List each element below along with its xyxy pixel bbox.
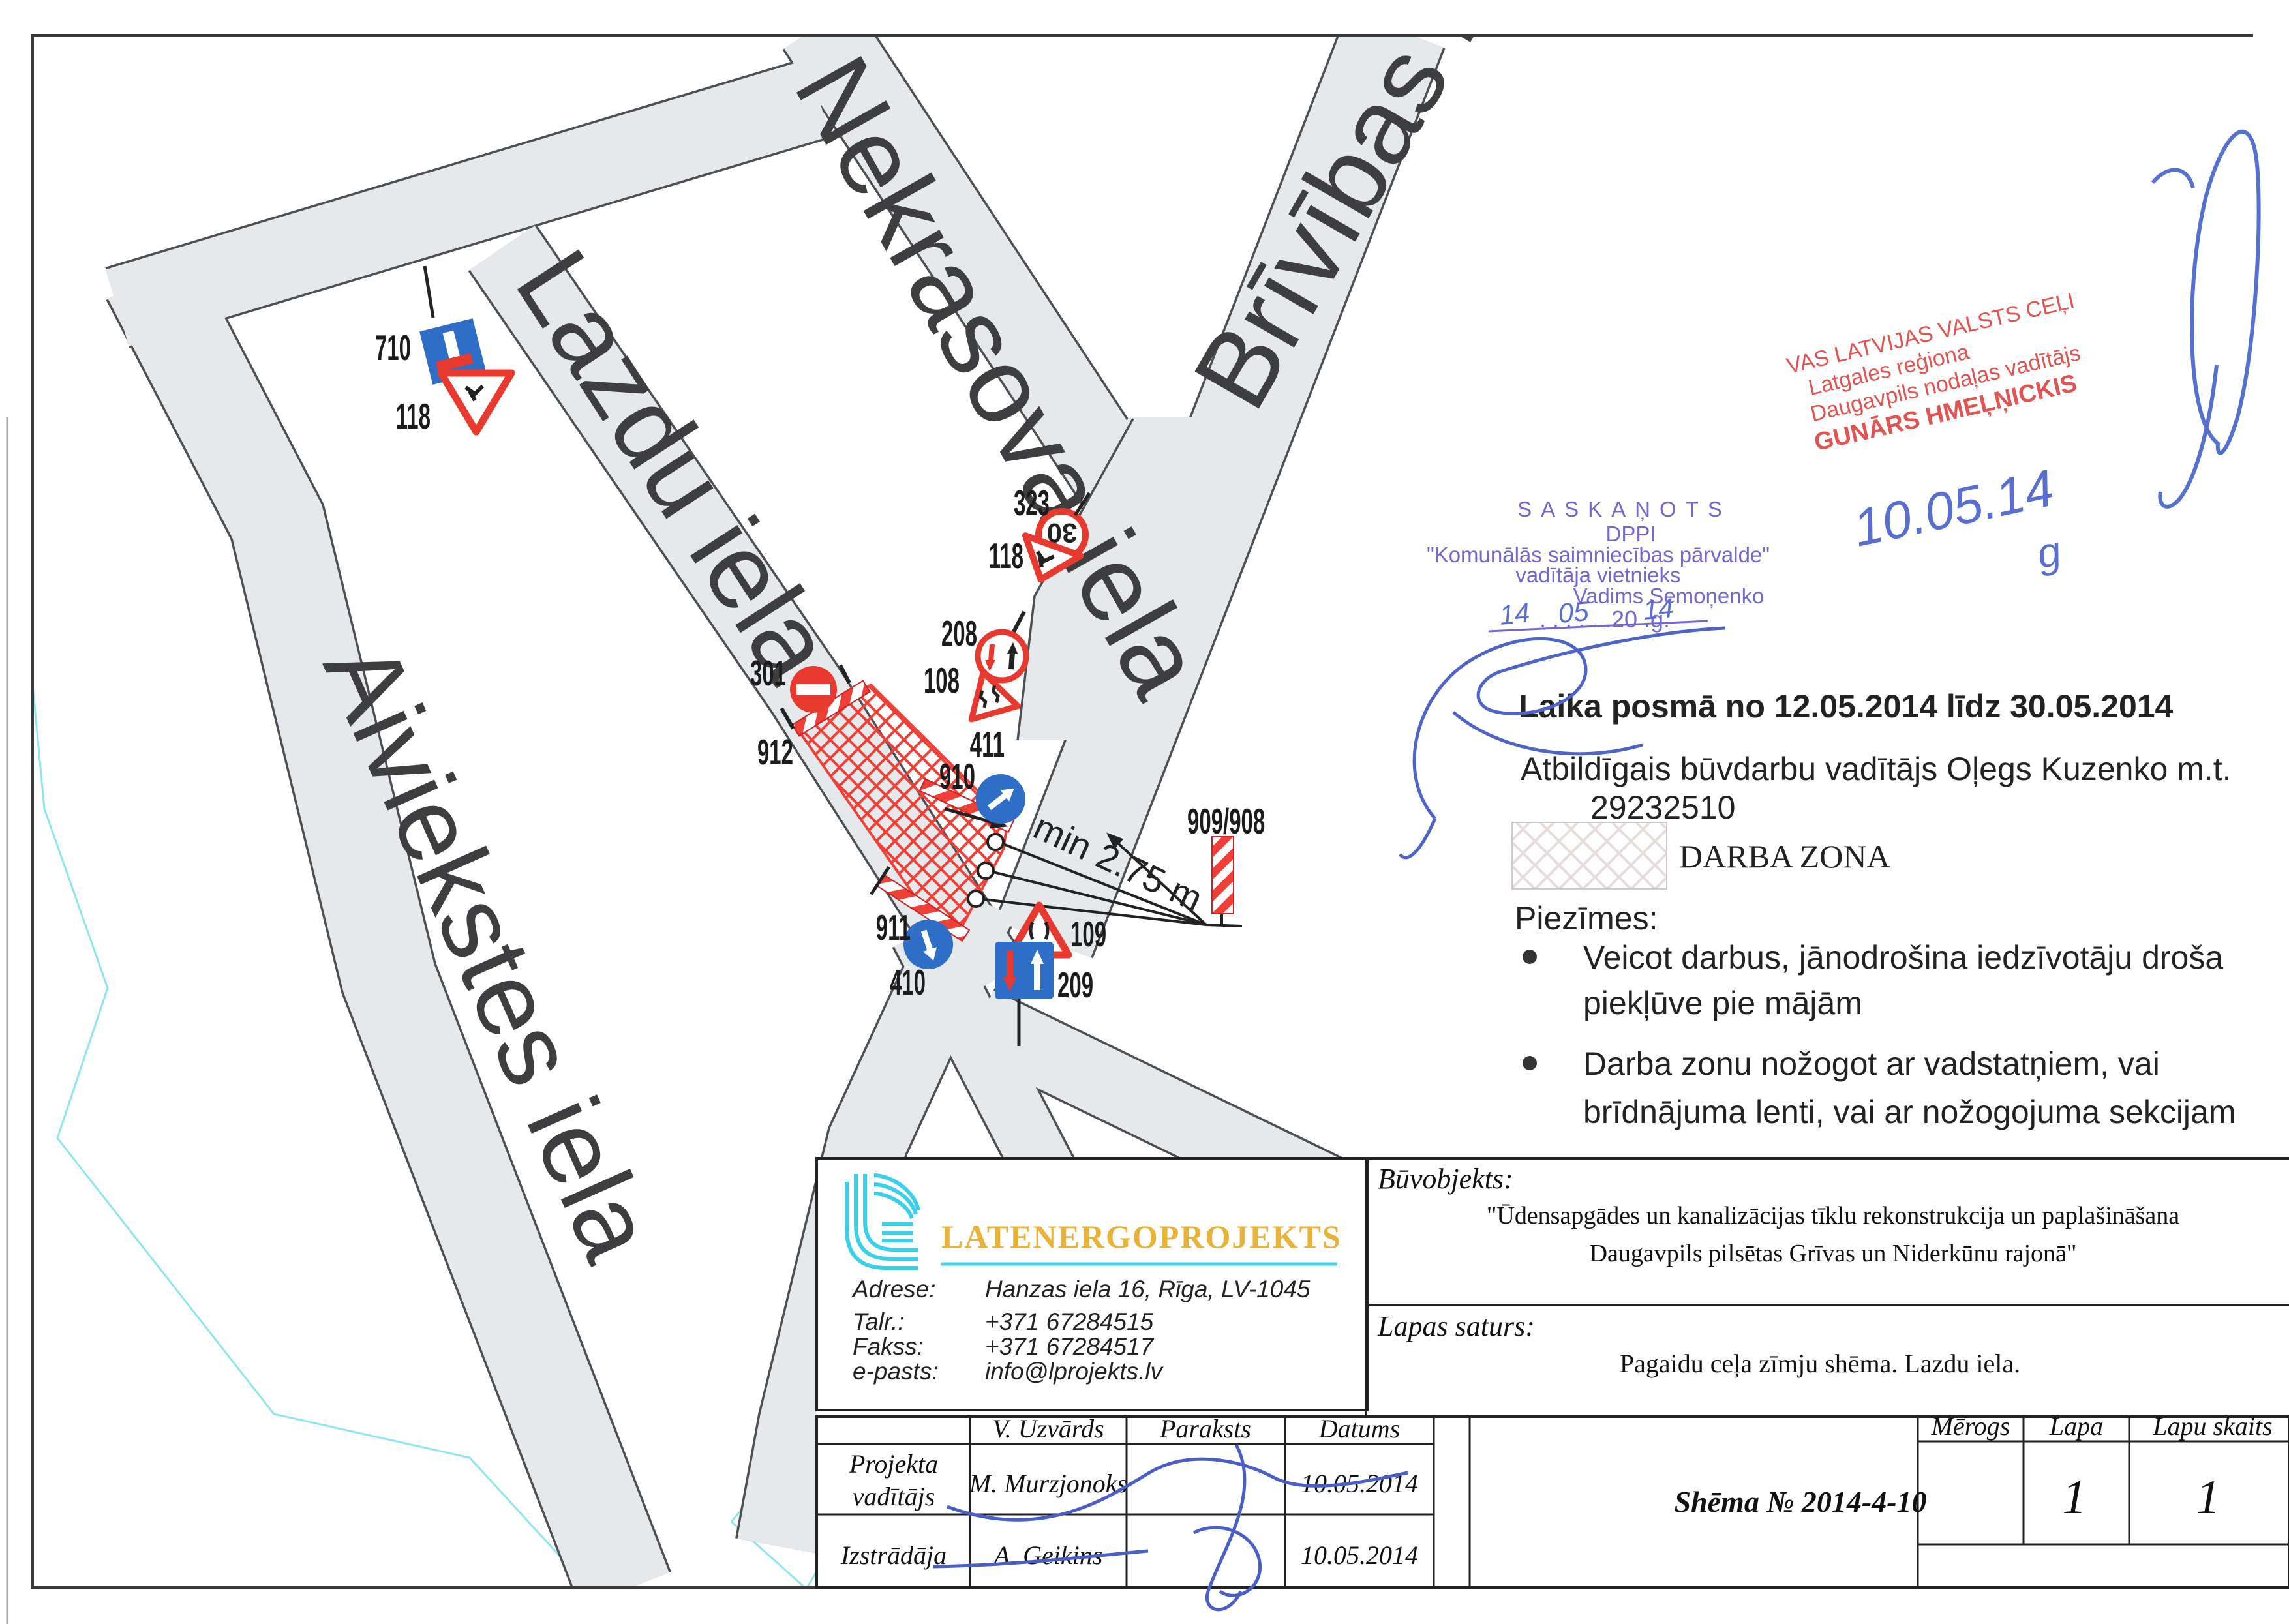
svg-text:Lapas saturs:: Lapas saturs: [1377,1310,1535,1342]
svg-text:108: 108 [924,660,960,700]
svg-text:Lapa: Lapa [2049,1411,2103,1441]
svg-text:05: 05 [1557,595,1590,629]
svg-text:+371 67284517: +371 67284517 [985,1333,1155,1360]
svg-text:109: 109 [1070,914,1106,954]
svg-text:DARBA ZONA: DARBA ZONA [1679,838,1890,875]
svg-text:911: 911 [876,907,911,948]
svg-text:Laika posmā no 12.05.2014 līdz: Laika posmā no 12.05.2014 līdz 30.05.201… [1519,688,2174,725]
svg-text:Paraksts: Paraksts [1159,1414,1251,1443]
svg-text:Piezīmes:: Piezīmes: [1515,900,1658,937]
svg-text:Shēma № 2014-4-10: Shēma № 2014-4-10 [1674,1485,1926,1518]
svg-text:V. Uzvārds: V. Uzvārds [992,1414,1104,1443]
svg-text:Daugavpils pilsētas Grīvas un: Daugavpils pilsētas Grīvas un Niderkūnu … [1590,1240,2077,1267]
svg-text:Hanzas iela 16, Rīga, LV-1045: Hanzas iela 16, Rīga, LV-1045 [985,1276,1311,1302]
svg-text:118: 118 [989,535,1023,576]
svg-text:vadītājs: vadītājs [853,1482,935,1511]
svg-text:LATENERGOPROJEKTS: LATENERGOPROJEKTS [941,1218,1342,1255]
svg-text:A. Geikins: A. Geikins [992,1541,1103,1570]
svg-text:1: 1 [2063,1471,2087,1524]
svg-text:Projekta: Projekta [849,1449,938,1479]
svg-text:Lapu skaits: Lapu skaits [2152,1411,2272,1441]
svg-text:209: 209 [1057,965,1093,1005]
svg-text:+371 67284515: +371 67284515 [985,1308,1154,1335]
svg-text:piekļūve pie mājām: piekļūve pie mājām [1583,985,1862,1021]
svg-text:912: 912 [757,732,793,772]
svg-text:Atbildīgais būvdarbu vadītājs: Atbildīgais būvdarbu vadītājs Oļegs Kuze… [1521,751,2231,787]
svg-text:e-pasts:: e-pasts: [853,1358,939,1385]
svg-text:Darba zonu nožogot ar vadstatņ: Darba zonu nožogot ar vadstatņiem, vai [1583,1045,2160,1082]
svg-text:301: 301 [750,653,786,693]
svg-text:brīdnājuma lenti, vai ar nožog: brīdnājuma lenti, vai ar nožogojuma sekc… [1583,1094,2236,1130]
svg-text:Datums: Datums [1318,1414,1400,1443]
svg-text:Izstrādāja: Izstrādāja [840,1541,947,1570]
svg-text:"Ūdensapgādes un kanalizācijas: "Ūdensapgādes un kanalizācijas tīklu rek… [1487,1202,2179,1229]
svg-text:1: 1 [2196,1471,2221,1524]
svg-text:710: 710 [375,327,411,368]
svg-text:SASKAŅOTS: SASKAŅOTS [1517,497,1731,521]
svg-text:410: 410 [890,962,926,1002]
svg-text:118: 118 [396,396,431,436]
svg-text:14: 14 [1642,592,1675,625]
svg-text:Veicot darbus, jānodrošina ied: Veicot darbus, jānodrošina iedzīvotāju d… [1583,939,2223,976]
svg-text:M. Murzjonoks: M. Murzjonoks [969,1469,1127,1498]
svg-text:29232510: 29232510 [1590,789,1735,826]
svg-text:Fakss:: Fakss: [853,1333,924,1360]
svg-text:info@lprojekts.lv: info@lprojekts.lv [985,1358,1164,1385]
svg-text:Talr.:: Talr.: [853,1308,905,1335]
svg-text:208: 208 [941,613,977,654]
svg-text:14: 14 [1498,597,1531,631]
svg-text:10.05.2014: 10.05.2014 [1301,1541,1418,1570]
svg-text:323: 323 [1014,483,1050,523]
svg-text:Pagaidu ceļa zīmju shēma. Lazd: Pagaidu ceļa zīmju shēma. Lazdu iela. [1620,1349,2020,1378]
svg-text:Mērogs: Mērogs [1931,1411,2010,1441]
svg-text:Būvobjekts:: Būvobjekts: [1378,1163,1513,1195]
svg-text:909/908: 909/908 [1187,801,1265,841]
svg-text:910: 910 [939,756,975,796]
svg-text:Adrese:: Adrese: [851,1276,936,1302]
